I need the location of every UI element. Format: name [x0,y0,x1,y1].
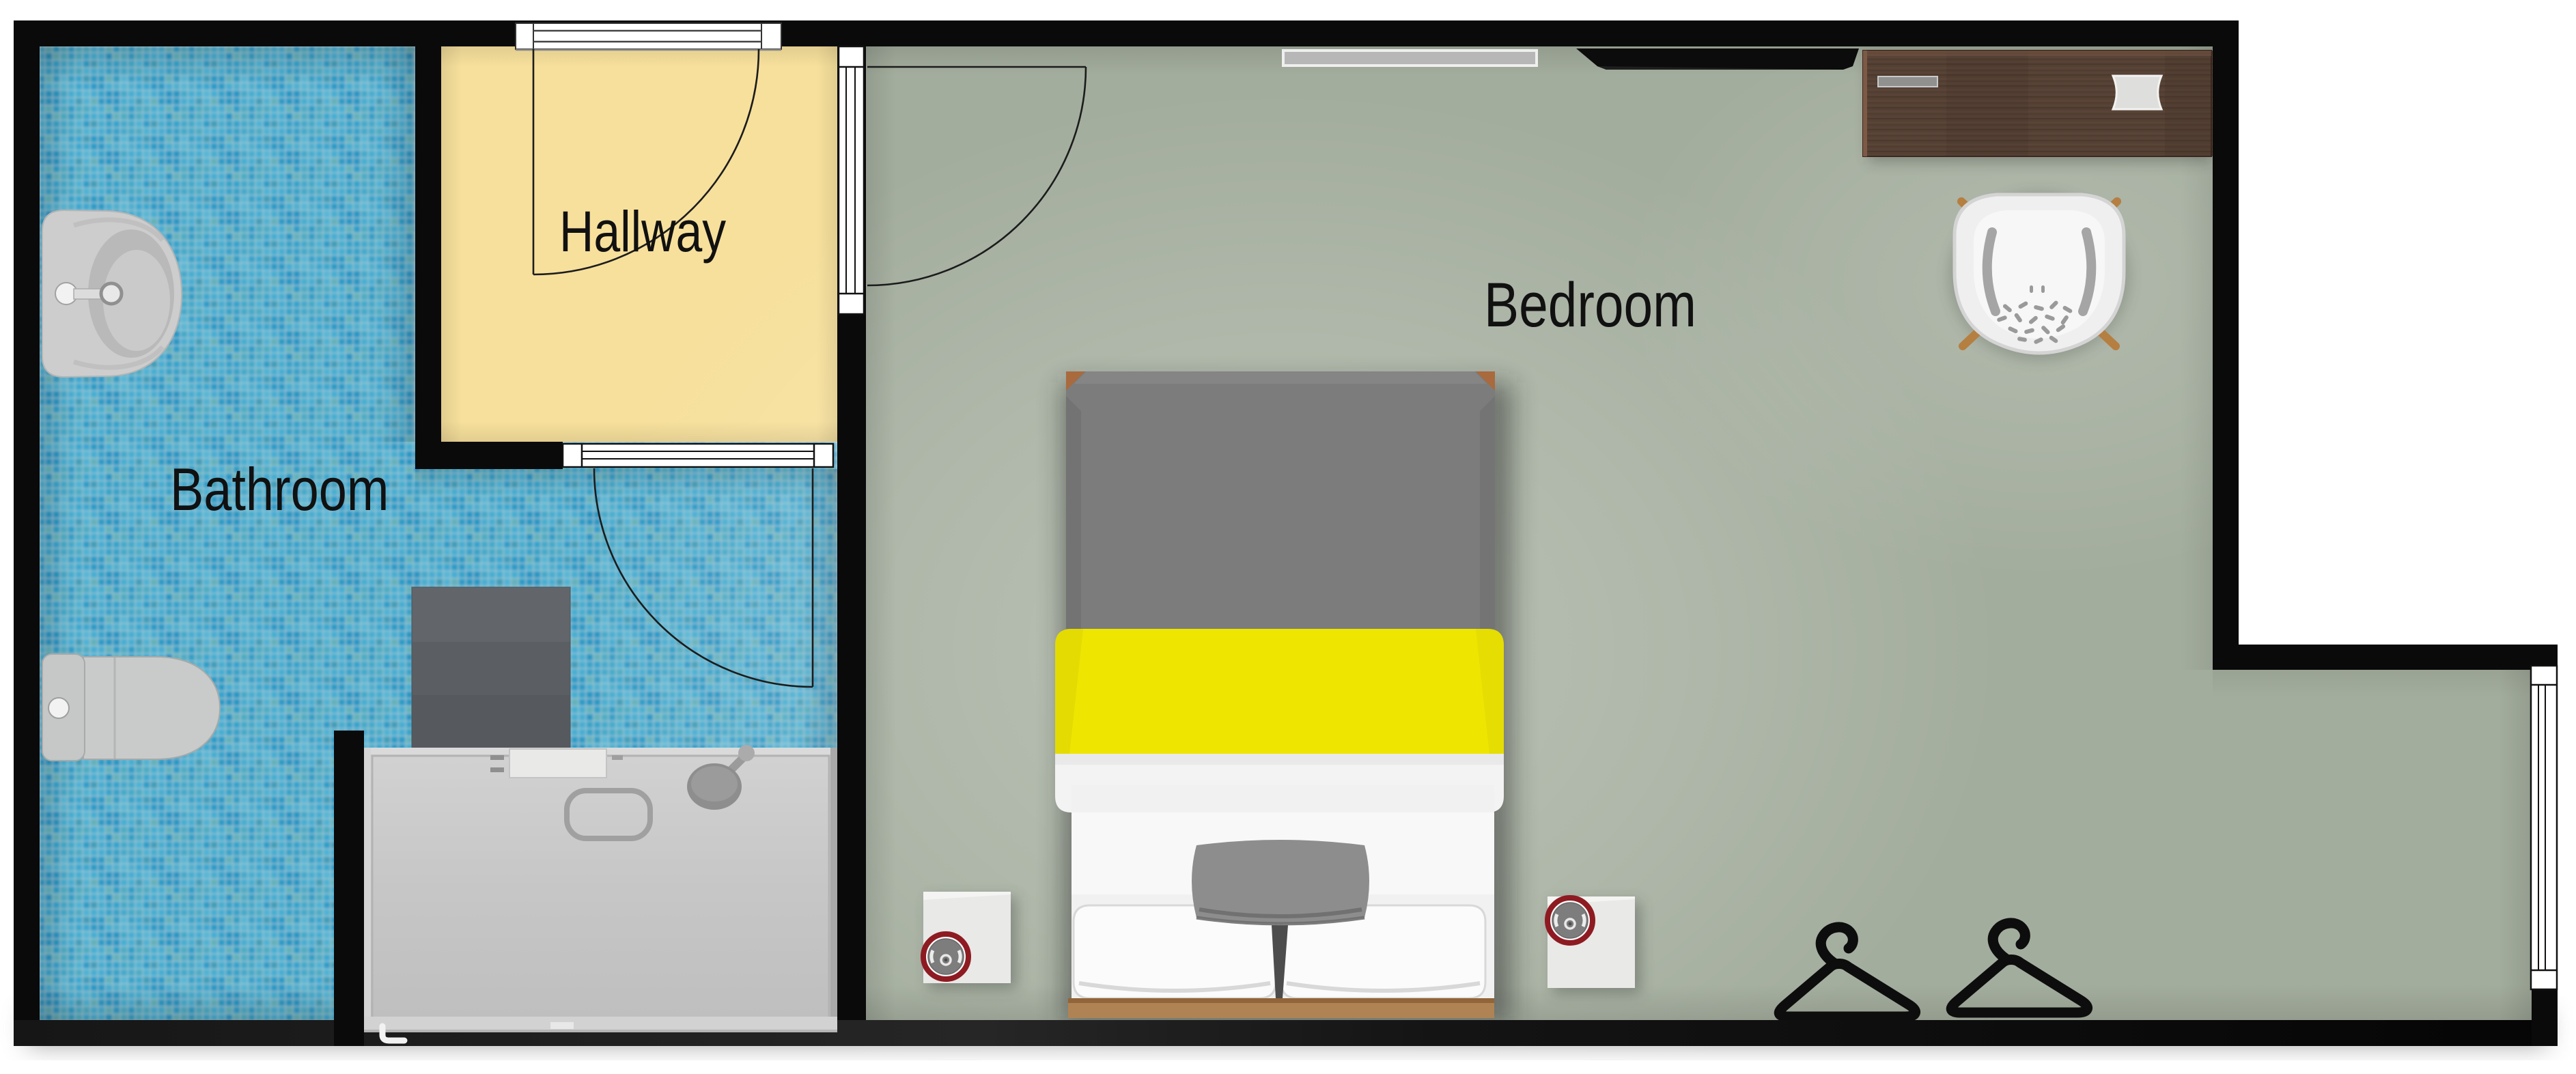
svg-text:Bathroom: Bathroom [170,456,389,524]
svg-text:Bedroom: Bedroom [1484,269,1696,339]
svg-text:Hallway: Hallway [559,200,726,264]
